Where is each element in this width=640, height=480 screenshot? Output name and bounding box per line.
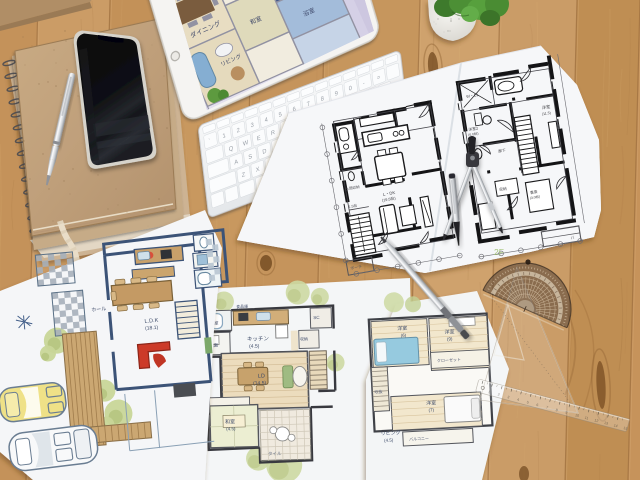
svg-text:2F: 2F: [494, 247, 504, 257]
svg-text:(18.1): (18.1): [145, 325, 159, 332]
svg-text:SC: SC: [313, 315, 320, 320]
svg-text:洋室: 洋室: [426, 399, 436, 407]
svg-text:洋室: 洋室: [397, 325, 407, 333]
svg-text:キッチン: キッチン: [247, 335, 270, 343]
svg-text:(4.5): (4.5): [226, 426, 236, 431]
svg-text:(4.5): (4.5): [249, 344, 260, 350]
svg-text:LD: LD: [258, 373, 265, 379]
svg-text:和室: 和室: [225, 418, 235, 425]
svg-text:クローゼット: クローゼット: [437, 356, 461, 363]
svg-text:リビング: リビング: [381, 429, 401, 437]
svg-text:(4.5): (4.5): [384, 438, 394, 444]
svg-text:バルコニー: バルコニー: [409, 436, 429, 442]
svg-text:洋室: 洋室: [444, 328, 454, 336]
svg-text:食品庫: 食品庫: [236, 303, 248, 309]
svg-text:吹抜: 吹抜: [374, 388, 382, 394]
svg-text:(6): (6): [400, 333, 406, 338]
svg-text:L.D.K: L.D.K: [144, 318, 159, 325]
svg-text:(7): (7): [428, 407, 434, 412]
svg-text:収納: 収納: [300, 335, 308, 341]
svg-text:(9): (9): [447, 336, 453, 341]
svg-text:(14.5): (14.5): [253, 380, 267, 386]
